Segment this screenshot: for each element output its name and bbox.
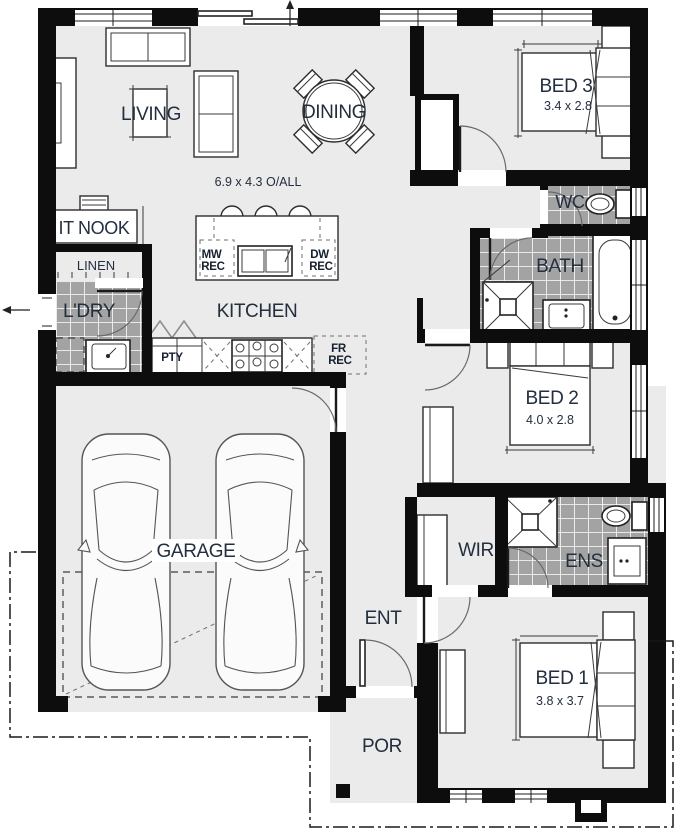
bath-window [632, 240, 646, 330]
wc-window [632, 188, 646, 216]
sofa-2 [194, 71, 238, 157]
bedside-table [603, 612, 634, 640]
shower [505, 497, 557, 547]
room-dim-bed3: 3.4 x 2.8 [544, 99, 592, 113]
appliance-label-fr-rec: FR REC [328, 343, 351, 367]
desk-chair [80, 196, 108, 211]
bed2-window [632, 365, 646, 458]
room-label-pty: PTY [161, 352, 183, 364]
bedside-table [603, 740, 634, 768]
laundry-external-door [2, 306, 30, 314]
room-label-bed1: BED 1 [536, 668, 589, 689]
room-label-ldry: L'DRY [63, 301, 116, 322]
room-label-linen: LINEN [77, 258, 115, 273]
floor-plan-drawing: LIVING DINING 6.9 x 4.3 O/ALL IT NOOK LI… [0, 0, 680, 832]
room-label-bath: BATH [536, 256, 584, 277]
island-sink [238, 246, 292, 276]
ens-window [650, 498, 664, 532]
room-label-por: POR [362, 736, 402, 757]
room-label-wir: WIR [458, 540, 494, 561]
sliding-door [198, 0, 298, 26]
room-dim-bed2: 4.0 x 2.8 [526, 413, 574, 427]
bed-head [597, 640, 635, 740]
bed2-robe [423, 407, 453, 483]
bedside-table [487, 342, 508, 368]
bed1-robe [440, 650, 465, 733]
bedside-table [602, 26, 633, 50]
cooktop [232, 340, 282, 372]
room-label-wc: WC [555, 192, 585, 212]
exit-arrow-icon [2, 306, 11, 314]
room-label-bed2: BED 2 [526, 388, 579, 409]
appliance-label-mw-rec: MW REC [201, 249, 224, 273]
bed1-window [450, 790, 482, 803]
room-label-dining: DINING [302, 102, 366, 123]
wir-shelving [417, 515, 447, 591]
room-label-bed3: BED 3 [540, 76, 593, 97]
bed [520, 643, 597, 737]
door-direction-arrow-icon [286, 0, 294, 9]
room-label-kitchen: KITCHEN [217, 301, 298, 322]
living-window [75, 10, 152, 26]
room-label-it-nook: IT NOOK [59, 218, 130, 238]
room-dim-bed1: 3.8 x 3.7 [536, 694, 584, 708]
floor-plan: LIVING DINING 6.9 x 4.3 O/ALL IT NOOK LI… [0, 0, 680, 832]
room-label-ens: ENS [565, 551, 603, 572]
porch-post [336, 784, 350, 798]
shower [483, 282, 533, 332]
room-label-garage: GARAGE [157, 541, 236, 562]
sofa [106, 28, 190, 66]
bed-head [510, 340, 590, 366]
bed1-window-2 [515, 790, 547, 803]
laundry-trough [86, 340, 130, 373]
bed-head [596, 48, 634, 136]
bedside-table [592, 342, 613, 368]
overall-dimension: 6.9 x 4.3 O/ALL [215, 175, 302, 189]
room-label-living: LIVING [121, 104, 181, 125]
appliance-label-dw-rec: DW REC [309, 249, 332, 273]
bath-vanity [543, 300, 590, 332]
room-label-ent: ENT [365, 608, 403, 629]
bed3-window [493, 10, 592, 26]
bedside-table [602, 134, 633, 158]
dining-window [380, 10, 457, 26]
ens-vanity [608, 538, 646, 584]
